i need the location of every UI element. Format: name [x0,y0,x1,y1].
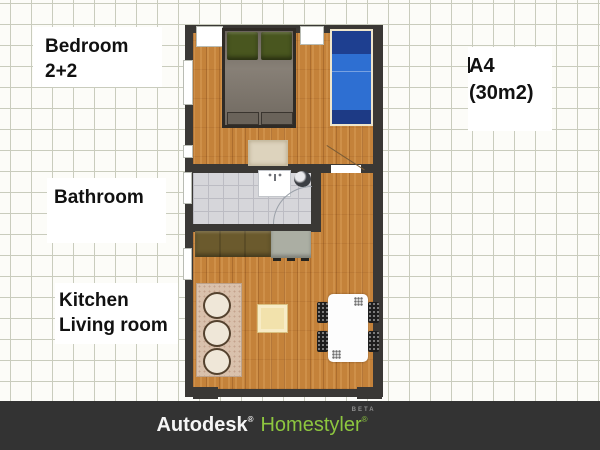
registered-mark-icon: ® [362,415,368,424]
dining-table[interactable] [328,294,368,362]
faucet-icon [268,173,282,183]
table-setting-top [354,297,363,306]
wall-bathroom-right [311,164,321,232]
plan-name-line2: (30m2) [469,80,552,107]
single-bed[interactable] [330,29,373,126]
window-top-left [196,26,223,47]
kitchen-label[interactable]: Kitchen Living room [55,283,178,344]
window-top-right [300,26,324,45]
kitchen-label-line1: Kitchen [59,288,178,313]
clipped-glyph-fragment [468,57,470,73]
dining-chair-1[interactable] [317,302,328,323]
bedroom-label[interactable]: Bedroom 2+2 [33,27,162,87]
brand-logo: Autodesk®Homestyler®BETA [156,414,367,437]
sofa-cushion-2 [203,320,231,347]
bedroom-label-line1: Bedroom [45,34,162,59]
plan-name-line1: A4 [469,53,552,80]
window-kitchen-left [183,248,192,280]
dining-chair-4[interactable] [368,331,379,352]
door-opening-bedroom [331,165,361,173]
single-bed-seam [332,71,371,72]
single-bed-pillow [332,31,371,54]
dining-chair-3[interactable] [368,302,379,323]
bedroom-rug[interactable] [248,140,288,166]
bathroom-label-line1: Bathroom [54,185,166,210]
bed-drawer-right [261,112,293,125]
floorplan-export-canvas: Bedroom 2+2 Bathroom Kitchen Living room… [0,0,600,450]
coffee-table[interactable] [257,304,288,333]
pillow-right [261,32,292,60]
autodesk-wordmark: Autodesk® [156,414,253,436]
double-bed[interactable] [222,28,296,128]
single-bed-foot [332,110,371,124]
window-left-small [183,145,193,158]
window-bedroom-left [183,60,193,105]
sofa-cushion-3 [203,348,231,375]
bedroom-label-line2: 2+2 [45,59,162,84]
beta-badge: BETA [352,407,376,413]
homestyler-wordmark: Homestyler® [260,414,367,436]
wall-stub-bottom-right [357,387,382,399]
kitchen-appliance[interactable] [271,231,311,258]
bathroom-sink[interactable] [258,170,291,197]
brand-footer: Autodesk®Homestyler®BETA [0,401,600,450]
pillow-left [227,32,258,60]
sofa[interactable] [196,283,242,377]
toilet[interactable] [294,171,311,187]
sofa-cushion-1 [203,292,231,319]
kitchen-counter[interactable] [195,231,271,257]
kitchen-label-line2: Living room [59,313,178,338]
bed-drawer-left [227,112,259,125]
wall-stub-bottom-left [193,387,218,399]
appliance-controls [273,258,309,261]
table-setting-bottom [332,350,341,359]
plan-name-label[interactable]: A4 (30m2) [468,47,552,131]
dining-chair-2[interactable] [317,331,328,352]
bathroom-label[interactable]: Bathroom [47,178,166,243]
window-bathroom-left [183,172,192,204]
